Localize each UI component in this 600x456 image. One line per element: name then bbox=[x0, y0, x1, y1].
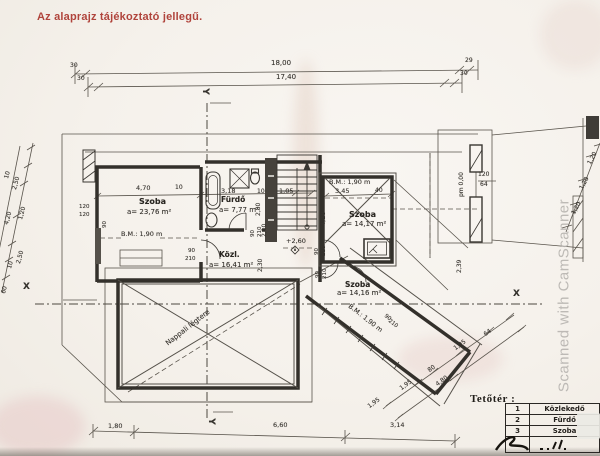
dim: 2,30 bbox=[258, 259, 264, 272]
dim-total: 18,00 bbox=[271, 60, 291, 67]
section-marker-x: X bbox=[23, 283, 30, 292]
level-pm: pm 0,00 bbox=[459, 172, 465, 197]
dim-30: 30 bbox=[460, 71, 468, 77]
section-marker-y: Y bbox=[206, 418, 215, 425]
legend-row-num: 1 bbox=[506, 404, 530, 415]
room-area: a= 16,41 m² bbox=[209, 262, 253, 269]
section-marker-x: X bbox=[513, 290, 520, 299]
dim: 4,10 bbox=[320, 212, 327, 226]
room-name: Fürdő bbox=[221, 196, 245, 204]
room-area: a= 14,16 m² bbox=[337, 290, 381, 297]
door-size: 90 bbox=[251, 230, 257, 237]
legend-row-num: 2 bbox=[506, 415, 530, 426]
dim: 120 bbox=[79, 205, 90, 211]
dim-inner: 17,40 bbox=[276, 74, 296, 81]
dim: 2,80 bbox=[256, 203, 262, 216]
door-size: 210 bbox=[322, 246, 328, 257]
dim: 64 bbox=[480, 182, 488, 188]
door-size: 210 bbox=[185, 257, 196, 263]
dim: 40 bbox=[375, 188, 383, 194]
dim-30: 30 bbox=[77, 76, 85, 82]
dim-30: 30 bbox=[70, 63, 78, 69]
dim: 6,60 bbox=[273, 422, 287, 429]
dim: 120 bbox=[478, 172, 489, 178]
scanned-floorplan-page: Az alaprajz tájékoztató jellegű. 18,00 1… bbox=[0, 0, 600, 456]
dim: 4,70 bbox=[136, 185, 150, 192]
door-size: 90 bbox=[315, 248, 321, 255]
room-area: a= 7,77 m² bbox=[219, 207, 259, 214]
dim: 3,14 bbox=[390, 422, 404, 429]
door-size: 90 bbox=[188, 249, 195, 255]
room-bm: B.M.: 1,90 m bbox=[329, 179, 370, 186]
dim-29: 29 bbox=[465, 58, 473, 64]
dim: 10 bbox=[257, 189, 265, 195]
room-bm: B.M.: 1,90 m bbox=[121, 231, 162, 238]
dim: 10 bbox=[175, 185, 183, 191]
room-name: Szoba bbox=[139, 198, 166, 206]
dim: 120 bbox=[79, 213, 90, 219]
dim: 3,18 bbox=[221, 188, 235, 195]
section-marker-y: Y bbox=[200, 88, 209, 95]
room-area: a= 23,76 m² bbox=[127, 209, 171, 216]
room-area: a= 14,17 m² bbox=[342, 221, 386, 228]
door-size: 210 bbox=[323, 269, 329, 280]
dim: 90 bbox=[103, 221, 109, 228]
dim: 3,45 bbox=[335, 188, 349, 195]
dim: 1,05 bbox=[279, 188, 293, 195]
floorplan-linework bbox=[0, 0, 600, 456]
dim: 1,80 bbox=[108, 423, 122, 430]
door-size: 90 bbox=[316, 271, 322, 278]
disclaimer-note: Az alaprajz tájékoztató jellegű. bbox=[37, 12, 202, 23]
level-mark: +2,60 bbox=[286, 238, 306, 245]
room-name: Szoba bbox=[349, 211, 376, 219]
room-name: Szoba bbox=[345, 281, 370, 289]
room-name: Közl. bbox=[219, 251, 240, 259]
signature-scribble bbox=[480, 430, 600, 456]
camscanner-watermark: Scanned with CamScanner bbox=[556, 156, 573, 436]
dim: 2,10 bbox=[262, 224, 268, 237]
dim: 2,39 bbox=[457, 260, 463, 273]
